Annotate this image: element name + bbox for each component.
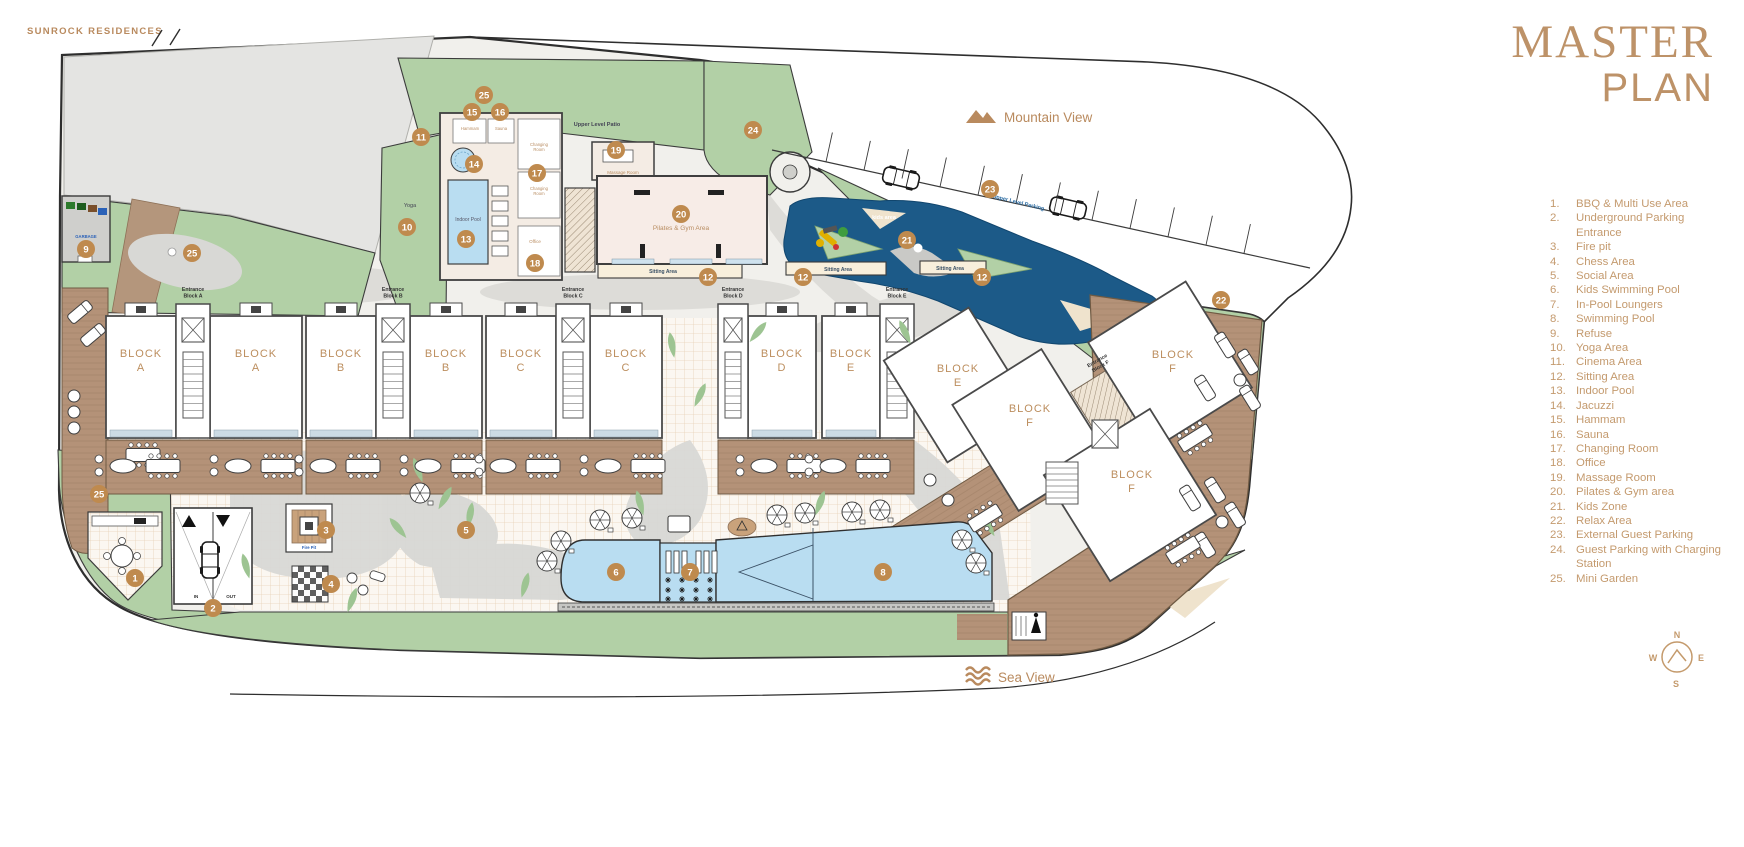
amenity-marker: 6 <box>607 563 625 581</box>
amenity-marker: 15 <box>463 103 481 121</box>
amenity-marker: 12 <box>973 268 991 286</box>
marker-number: 12 <box>798 272 809 283</box>
compass-e: E <box>1698 653 1704 663</box>
amenity-marker: 25 <box>475 86 493 104</box>
compass-s: S <box>1673 679 1679 689</box>
block-building <box>106 316 176 438</box>
area-label: kids area <box>872 215 897 221</box>
table-icon <box>68 422 80 434</box>
amenity-marker: 20 <box>672 205 690 223</box>
amenity-marker: 11 <box>412 128 430 146</box>
amenity-marker: 7 <box>681 563 699 581</box>
sauna-room <box>488 119 514 143</box>
area-label: Pilates & Gym Area <box>653 225 710 232</box>
marker-number: 25 <box>94 489 105 500</box>
amenity-marker: 9 <box>77 240 95 258</box>
amenity-marker: 22 <box>1212 291 1230 309</box>
table-icon <box>595 459 621 473</box>
amenity-marker: 13 <box>457 230 475 248</box>
area-label: Sitting Area <box>936 266 964 272</box>
block-building <box>822 316 880 438</box>
area-label: Upper Level Patio <box>574 122 621 128</box>
amenity-marker: 25 <box>90 485 108 503</box>
amenity-marker: 23 <box>981 180 999 198</box>
marker-number: 6 <box>613 567 618 578</box>
table-icon <box>490 459 516 473</box>
marker-number: 20 <box>676 209 687 220</box>
amenity-marker: 19 <box>607 141 625 159</box>
area-label: Hammam <box>461 126 480 131</box>
table-icon <box>942 494 954 506</box>
site-plan: Pilates & Gym AreaSitting AreaSitting Ar… <box>0 0 1744 847</box>
amenity-marker: 12 <box>794 268 812 286</box>
entrance-label: EntranceBlock D <box>722 287 744 300</box>
marker-number: 13 <box>461 234 472 245</box>
block-building <box>306 316 376 438</box>
marker-number: 15 <box>467 107 478 118</box>
marker-number: 25 <box>187 248 198 259</box>
marker-number: 10 <box>402 222 413 233</box>
mountain-view-label: Mountain View <box>966 110 1093 125</box>
marker-number: 5 <box>463 525 469 536</box>
garden-dot <box>168 248 176 256</box>
bottom-deck <box>957 614 1007 640</box>
amenity-marker: 12 <box>699 268 717 286</box>
table-icon <box>820 459 846 473</box>
table-icon <box>1234 374 1246 386</box>
area-label: Upper Level Parking <box>992 194 1045 213</box>
corner-ticks <box>152 29 180 46</box>
marker-number: 23 <box>985 184 996 195</box>
amenity-marker: 25 <box>183 244 201 262</box>
amenity-marker: 21 <box>898 231 916 249</box>
table-icon <box>110 459 136 473</box>
table-icon <box>225 459 251 473</box>
amenity-marker: 5 <box>457 521 475 539</box>
amenity-marker: 17 <box>528 164 546 182</box>
sea-icon <box>966 668 990 685</box>
compass-n: N <box>1674 630 1681 640</box>
master-plan-page: SUNROCK RESIDENCES MASTER PLAN 1.BBQ & M… <box>0 0 1744 847</box>
marker-number: 24 <box>748 125 759 136</box>
area-label: Indoor Pool <box>455 217 481 223</box>
marker-number: 12 <box>977 272 988 283</box>
marker-number: 8 <box>880 567 885 578</box>
amenity-marker: 24 <box>744 121 762 139</box>
entrance-label: EntranceBlock A <box>182 287 204 300</box>
amenity-marker: 18 <box>526 254 544 272</box>
table-icon <box>1216 516 1228 528</box>
area-label: Office <box>529 239 541 244</box>
marker-number: 9 <box>83 244 88 255</box>
marker-number: 4 <box>328 579 334 590</box>
marker-number: 17 <box>532 168 543 179</box>
area-label: Yoga <box>404 203 417 209</box>
block-building <box>486 316 556 438</box>
amenity-marker: 10 <box>398 218 416 236</box>
amenity-marker: 4 <box>322 575 340 593</box>
car-icon <box>881 164 921 192</box>
mountain-view-text: Mountain View <box>1004 110 1093 125</box>
area-label: OUT <box>226 594 236 599</box>
area-label: GARBAGE <box>75 234 97 239</box>
table-icon <box>310 459 336 473</box>
marker-number: 3 <box>323 525 328 536</box>
art-statue <box>1012 612 1046 640</box>
area-label: Sitting Area <box>649 269 677 275</box>
marker-number: 2 <box>210 603 215 614</box>
table-icon <box>68 406 80 418</box>
amenity-marker: 3 <box>317 521 335 539</box>
roundabout-island <box>783 165 797 179</box>
marker-number: 12 <box>703 272 714 283</box>
area-label: Fire Pit <box>302 545 317 550</box>
compass: N E S W <box>1649 630 1704 689</box>
table-icon <box>751 459 777 473</box>
amenity-marker: 16 <box>491 103 509 121</box>
marker-number: 22 <box>1216 295 1227 306</box>
marker-number: 16 <box>495 107 506 118</box>
area-label: Sitting Area <box>824 267 852 273</box>
sea-view-text: Sea View <box>998 670 1055 685</box>
amenity-marker: 2 <box>204 599 222 617</box>
area-label: Massage Room <box>607 170 639 175</box>
block-building <box>590 316 662 438</box>
area-label: IN <box>194 594 199 599</box>
table-icon <box>415 459 441 473</box>
table-icon <box>68 390 80 402</box>
marker-number: 11 <box>416 132 427 143</box>
marker-number: 19 <box>611 145 622 156</box>
marker-number: 7 <box>687 567 692 578</box>
marker-number: 21 <box>902 235 913 246</box>
block-building <box>210 316 302 438</box>
amenity-marker: 1 <box>126 569 144 587</box>
mountain-icon <box>966 110 996 123</box>
amenity-marker: 14 <box>465 155 483 173</box>
entrance-label: EntranceBlock E <box>886 287 908 300</box>
area-label: Sauna <box>495 126 508 131</box>
block-building <box>410 316 482 438</box>
entrance-label: EntranceBlock C <box>562 287 584 300</box>
marker-number: 25 <box>479 90 490 101</box>
table-icon <box>924 474 936 486</box>
compass-w: W <box>1649 653 1658 663</box>
hammam-room <box>453 119 486 143</box>
entrance-label: EntranceBlock B <box>382 287 404 300</box>
marker-number: 18 <box>530 258 541 269</box>
marker-number: 1 <box>132 573 138 584</box>
car-icon <box>1048 194 1088 222</box>
marker-number: 14 <box>469 159 480 170</box>
car-icon <box>200 542 220 578</box>
sea-view-label: Sea View <box>966 668 1055 686</box>
amenity-marker: 8 <box>874 563 892 581</box>
